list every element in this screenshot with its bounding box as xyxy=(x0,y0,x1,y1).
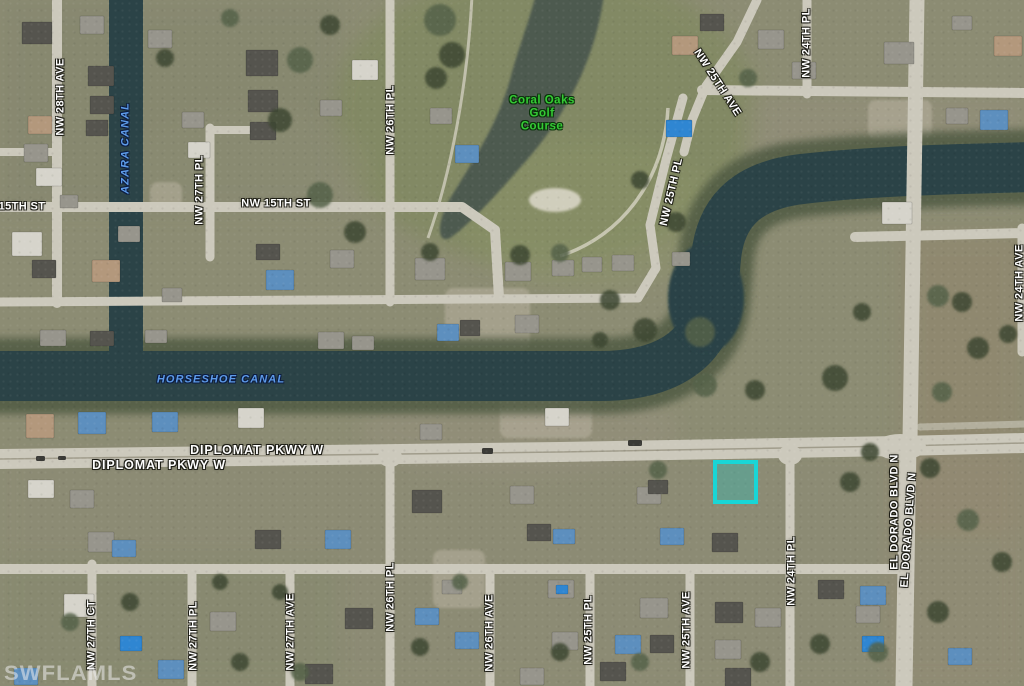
street-label-nw-25th-ave-bottom: NW 25TH AVE xyxy=(682,591,693,668)
street-label-nw-24th-ave: NW 24TH AVE xyxy=(1015,244,1024,321)
street-label-nw-25th-pl-bottom: NW 25TH PL xyxy=(584,595,595,664)
street-label-nw-26th-pl-top: NW 26TH PL xyxy=(386,85,397,154)
street-label-el-dorado-blvd-n-2: EL DORADO BLVD N xyxy=(899,472,918,588)
street-label-diplomat-pkwy-e: DIPLOMAT PKWY W xyxy=(190,444,324,457)
golf-label-line2: Golf xyxy=(530,108,555,120)
street-label-nw-27th-ct: NW 27TH CT xyxy=(87,600,98,670)
street-label-nw-26th-ave: NW 26TH AVE xyxy=(485,594,496,671)
canal-label-azara: AZARA CANAL xyxy=(121,102,132,194)
street-label-nw-25th-ave-top: NW 25TH AVE xyxy=(691,48,742,119)
street-label-nw-24th-pl-bottom: NW 24TH PL xyxy=(787,536,798,605)
street-label-nw-27th-pl-top: NW 27TH PL xyxy=(195,155,206,224)
golf-label-line3: Course xyxy=(521,121,564,133)
street-label-el-dorado-blvd-n-1: EL DORADO BLVD N xyxy=(890,454,901,569)
street-label-nw-27th-ave: NW 27TH AVE xyxy=(286,593,297,670)
map-labels-layer: NW 28TH AVEAZARA CANALNW 27TH PL15TH STN… xyxy=(0,0,1024,686)
street-label-15th-st: 15TH ST xyxy=(0,202,45,213)
canal-label-horseshoe: HORSESHOE CANAL xyxy=(157,375,285,386)
street-label-diplomat-pkwy-w: DIPLOMAT PKWY W xyxy=(92,459,226,472)
street-label-nw-25th-pl-top: NW 25TH PL xyxy=(659,157,685,227)
street-label-nw-28th-ave: NW 28TH AVE xyxy=(56,58,67,135)
street-label-nw-15th-st: NW 15TH ST xyxy=(241,199,310,210)
street-label-nw-26th-pl-bottom: NW 26TH PL xyxy=(386,562,397,631)
mls-watermark: SWFLAMLS xyxy=(4,662,137,686)
street-label-nw-27th-pl-bottom: NW 27TH PL xyxy=(189,601,200,670)
highlighted-lot-outline xyxy=(713,460,758,504)
satellite-map-photo[interactable]: NW 28TH AVEAZARA CANALNW 27TH PL15TH STN… xyxy=(0,0,1024,686)
golf-label-line1: Coral Oaks xyxy=(509,95,575,107)
street-label-nw-24th-pl-top: NW 24TH PL xyxy=(802,8,813,77)
